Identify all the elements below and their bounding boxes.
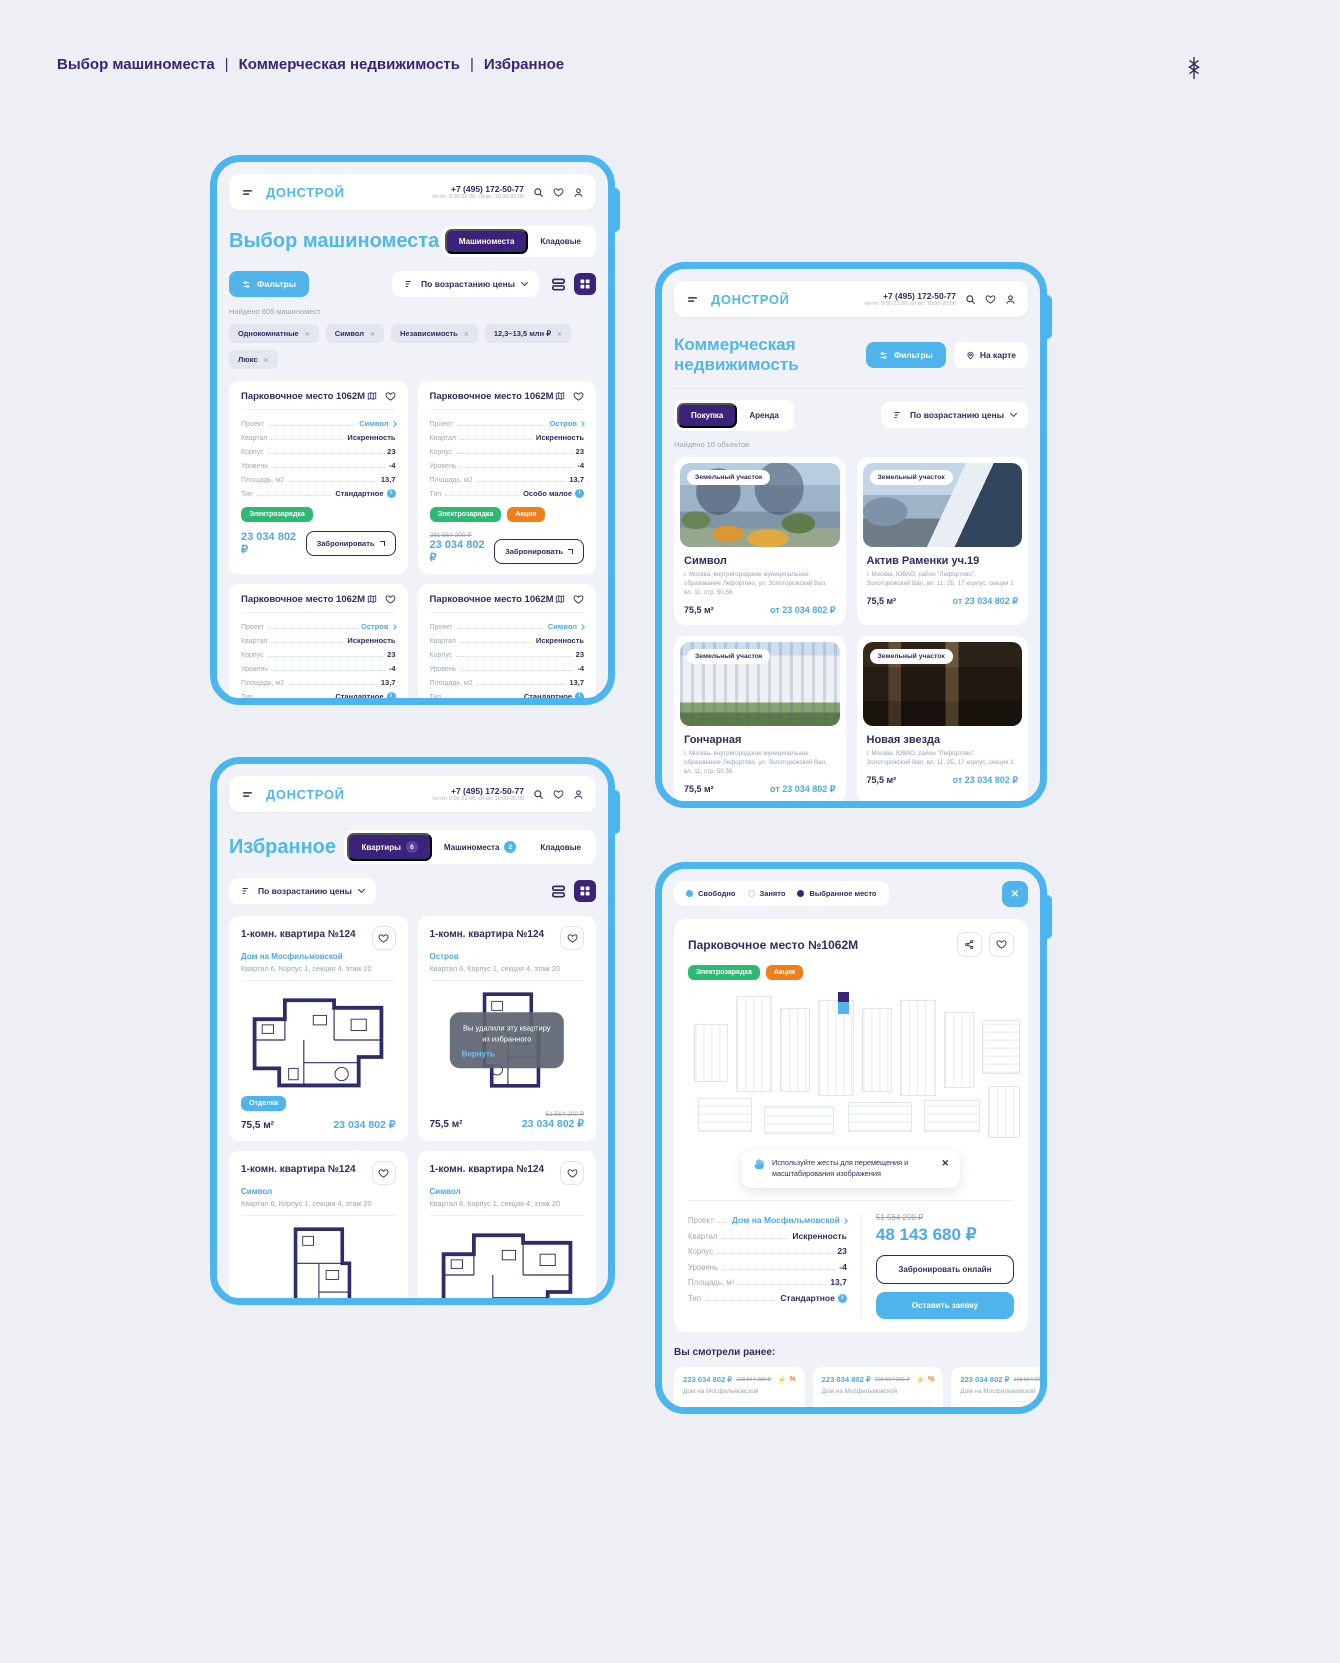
screen-parking-list: ДОНСТРОЙ +7 (495) 172-50-77 пн-пт: 9:00-… — [217, 162, 608, 698]
info-icon[interactable] — [575, 489, 584, 498]
app-bar: ДОНСТРОЙ +7 (495) 172-50-77 пн-пт: 9:00-… — [229, 776, 596, 812]
legend-occupied: Занято — [748, 889, 786, 898]
info-icon[interactable] — [838, 1294, 847, 1303]
chevron-down-icon — [358, 886, 365, 893]
property-area: 75,5 м² — [684, 605, 770, 615]
logo[interactable]: ДОНСТРОЙ — [711, 292, 790, 307]
parking-card-title: Парковочное место 1062М — [430, 594, 556, 605]
phone-number[interactable]: +7 (495) 172-50-77 — [864, 291, 956, 301]
parking-card: Парковочное место 1062М ПроектСимвол Ква… — [418, 584, 597, 698]
chevron-right-icon — [391, 421, 397, 427]
property-photo: Земельный участок — [680, 463, 840, 547]
parking-count-badge: 2 — [504, 841, 516, 853]
sort-icon — [893, 410, 903, 420]
apartment-location: Квартал 6, Корпус 1, секция 4, этаж 20 — [241, 1199, 396, 1208]
deal-tabs: Покупка Аренда — [674, 400, 794, 431]
apartments-count-badge: 6 — [406, 841, 418, 853]
map-view-button[interactable]: На карте — [954, 342, 1028, 368]
property-price: от 23 034 802 ₽ — [770, 784, 835, 795]
device-side-button — [1047, 295, 1052, 339]
grid-view-icon[interactable] — [574, 880, 596, 902]
promo-icon: % — [928, 1376, 934, 1383]
sort-icon — [404, 279, 414, 289]
selected-dot-icon — [797, 890, 804, 897]
apartment-card: 1-комн. квартира №124 Символ Квартал 6, … — [418, 1151, 597, 1298]
parking-card: Парковочное место 1062М ПроектОстров Ква… — [229, 584, 408, 698]
charging-icon: ⚡ — [778, 1376, 787, 1384]
view-toggle — [551, 880, 596, 902]
property-area: 75,5 м² — [867, 775, 953, 785]
info-icon[interactable] — [387, 489, 396, 498]
floor-plan-image — [241, 1219, 396, 1298]
section-divider — [674, 388, 1028, 389]
parking-card-title: Парковочное место 1062М — [430, 391, 556, 402]
page-title: Выбор машиноместа — [229, 230, 439, 253]
map-icon[interactable] — [367, 391, 377, 402]
property-photo: Земельный участок — [863, 463, 1023, 547]
property-price: от 23 034 802 ₽ — [770, 605, 835, 616]
apartment-area: 75,5 м² — [430, 1119, 522, 1130]
work-hours: пн-пт: 9:00-21:00, сб-вс: 10:00-20:00 — [432, 796, 524, 803]
app-bar: ДОНСТРОЙ +7 (495) 172-50-77 пн-пт: 9:00-… — [674, 281, 1028, 317]
breadcrumb-item: Выбор машиноместа — [57, 56, 215, 73]
tab-storage[interactable]: Кладовые — [528, 231, 593, 252]
project-link[interactable]: Символ — [548, 620, 584, 633]
apartment-title: 1-комн. квартира №124 — [430, 929, 561, 940]
parking-card: Парковочное место 1062М ПроектОстров Ква… — [418, 381, 597, 574]
history-project: Дом на Мосфильмовской — [683, 1388, 796, 1395]
map-icon[interactable] — [555, 594, 565, 605]
tab-storage[interactable]: Кладовые — [528, 837, 593, 858]
heart-icon[interactable] — [372, 1161, 396, 1185]
price: 23 034 802 ₽ — [241, 531, 306, 556]
apartment-area: 75,5 м² — [241, 1120, 333, 1131]
removed-toast-text: Вы удалили эту квартиру из избранного — [463, 1023, 551, 1043]
land-badge: Земельный участок — [870, 649, 953, 664]
screen-parking-detail: Свободно Занято Выбранное место Парковоч… — [662, 869, 1040, 1407]
history-price: 223 034 802 ₽ — [822, 1375, 871, 1384]
project-link[interactable]: Остров — [550, 417, 584, 430]
plan-legend: Свободно Занято Выбранное место — [674, 881, 889, 906]
price: 48 143 680 ₽ — [876, 1225, 1014, 1245]
floor-plan-image: Вы удалили эту квартиру из избранного Ве… — [430, 984, 585, 1096]
history-project: Дом на Мосфильмовской — [822, 1388, 935, 1395]
remove-chip-icon[interactable] — [464, 329, 469, 338]
device-side-button — [615, 188, 620, 232]
book-online-button[interactable]: Забронировать онлайн — [876, 1255, 1014, 1284]
menu-icon[interactable] — [686, 293, 699, 306]
parking-card-title: Парковочное место 1062М — [241, 594, 367, 605]
tab-apartments[interactable]: Квартиры6 — [347, 833, 431, 861]
land-badge: Земельный участок — [687, 649, 770, 664]
map-pin-icon — [966, 351, 975, 360]
remove-chip-icon[interactable] — [264, 355, 269, 364]
work-hours: пн-пт: 9:00-21:00, сб-вс: 10:00-20:00 — [864, 301, 956, 308]
page-title: Избранное — [229, 836, 336, 859]
project-link[interactable]: Остров — [430, 952, 585, 961]
project-link[interactable]: Символ — [241, 1187, 396, 1196]
apartment-card: 1-комн. квартира №124 Остров Квартал 6, … — [418, 916, 597, 1141]
property-address: г. Москва, ЮВАО, район "Лефортово", Золо… — [867, 571, 1019, 589]
gesture-tooltip: Используйте жесты для перемещения и масш… — [742, 1150, 960, 1188]
tab-buy[interactable]: Покупка — [677, 403, 737, 428]
history-old-price: 228 564 200 ₽ — [875, 1377, 913, 1383]
apartment-location: Квартал 6, Корпус 1, секция 4, этаж 20 — [241, 964, 396, 973]
apartment-title: 1-комн. квартира №124 — [430, 1164, 561, 1175]
price: 23 034 802 ₽ — [333, 1119, 395, 1131]
favorites-tabs: Квартиры6 Машиноместа2 Кладовые — [344, 830, 596, 864]
property-title: Символ — [684, 555, 836, 567]
filter-chip[interactable]: Символ — [326, 324, 384, 343]
breadcrumb-item: Избранное — [484, 56, 564, 73]
leave-request-button[interactable]: Оставить заявку — [876, 1292, 1014, 1319]
share-icon[interactable] — [957, 932, 982, 957]
filters-button[interactable]: Фильтры — [866, 342, 946, 368]
price: 23 034 802 ₽ — [430, 539, 495, 564]
breadcrumb-separator: | — [225, 56, 229, 73]
property-title: Гончарная — [684, 734, 836, 746]
filter-chips: Однокомнатные Символ Независимость 12,3–… — [229, 324, 596, 369]
contact-block: +7 (495) 172-50-77 пн-пт: 9:00-21:00, сб… — [432, 184, 524, 201]
chevron-right-icon — [391, 624, 397, 630]
apartment-location: Квартал 6, Корпус 1, секция 4, этаж 20 — [430, 964, 585, 973]
history-title: Вы смотрели ранее: — [674, 1347, 1028, 1358]
favorites-icon[interactable] — [553, 187, 564, 198]
chevron-right-icon — [579, 624, 585, 630]
app-bar: ДОНСТРОЙ +7 (495) 172-50-77 пн-пт: 9:00-… — [229, 174, 596, 210]
parking-detail-title: Парковочное место №1062М — [688, 938, 950, 952]
device-frame-parking-detail: Свободно Занято Выбранное место Парковоч… — [655, 862, 1047, 1414]
commercial-card[interactable]: Земельный участок Актив Раменки уч.19 г.… — [857, 457, 1029, 625]
search-icon[interactable] — [965, 294, 976, 305]
filter-icon — [879, 351, 888, 360]
sort-icon — [241, 886, 251, 896]
price: 23 034 802 ₽ — [522, 1118, 584, 1130]
apartment-card: 1-комн. квартира №124 Дом на Мосфильмовс… — [229, 916, 408, 1141]
heart-icon[interactable] — [560, 926, 584, 950]
apartment-title: 1-комн. квартира №124 — [241, 929, 372, 940]
book-button[interactable]: Забронировать — [306, 531, 396, 556]
history-old-price: 228 564 200 ₽ — [736, 1377, 774, 1383]
results-count: Найдено 10 объектов — [674, 440, 1028, 449]
close-icon[interactable] — [1002, 881, 1028, 907]
occupied-dot-icon — [748, 890, 755, 897]
chevron-down-icon — [521, 279, 528, 286]
contact-block: +7 (495) 172-50-77 пн-пт: 9:00-21:00, сб… — [864, 291, 956, 308]
history-price: 223 034 802 ₽ — [683, 1375, 732, 1384]
history-price: 223 034 802 ₽ — [960, 1375, 1009, 1384]
charging-icon: ⚡ — [916, 1376, 925, 1384]
screen-commercial: ДОНСТРОЙ +7 (495) 172-50-77 пн-пт: 9:00-… — [662, 269, 1040, 801]
chevron-down-icon — [1010, 410, 1017, 417]
old-price: 281 564 200 ₽ — [430, 531, 495, 539]
info-icon[interactable] — [575, 692, 584, 698]
phone-number[interactable]: +7 (495) 172-50-77 — [432, 184, 524, 194]
device-frame-favorites: ДОНСТРОЙ +7 (495) 172-50-77 пн-пт: 9:00-… — [210, 757, 615, 1305]
heart-icon[interactable] — [385, 594, 396, 605]
legend-selected: Выбранное место — [797, 889, 876, 898]
parking-card-title: Парковочное место 1062М — [241, 391, 367, 402]
land-badge: Земельный участок — [687, 470, 770, 485]
land-badge: Земельный участок — [870, 470, 953, 485]
filter-icon — [242, 280, 251, 289]
hand-gesture-icon — [753, 1158, 765, 1170]
badge-promo: Акция — [766, 965, 803, 980]
history-project: Дом на Мосфильмовской — [960, 1388, 1040, 1395]
heart-icon[interactable] — [560, 1161, 584, 1185]
device-side-button — [615, 790, 620, 834]
commercial-card[interactable]: Земельный участок Новая звезда г. Москва… — [857, 636, 1029, 801]
old-price: 51 564 200 ₽ — [876, 1213, 1014, 1222]
apartment-title: 1-комн. квартира №124 — [241, 1164, 372, 1175]
property-photo: Земельный участок — [863, 642, 1023, 726]
corner-arrow-icon — [380, 541, 385, 546]
chevron-right-icon — [579, 421, 585, 427]
removed-toast: Вы удалили эту квартиру из избранного Ве… — [450, 1012, 564, 1068]
old-price: 51 564 200 ₽ — [522, 1110, 584, 1118]
heart-icon[interactable] — [385, 391, 396, 402]
breadcrumb-item: Коммерческая недвижимость — [239, 56, 460, 73]
parking-properties: ПроектДом на Мосфильмовской КварталИскре… — [688, 1213, 861, 1319]
floor-plan-image — [430, 1219, 585, 1298]
parking-plan-image[interactable]: Используйте жесты для перемещения и масш… — [688, 990, 1014, 1188]
property-address: г. Москва, внутригородское муниципальное… — [684, 750, 836, 777]
project-link[interactable]: Остров — [361, 620, 395, 633]
account-icon[interactable] — [1005, 294, 1016, 305]
restore-link[interactable]: Вернуть — [462, 1049, 495, 1058]
remove-chip-icon[interactable] — [557, 329, 562, 338]
device-side-button — [1047, 895, 1052, 939]
apartment-location: Квартал 6, Корпус 1, секция 4, этаж 20 — [430, 1199, 585, 1208]
badge-finishing: Отделка — [241, 1096, 286, 1111]
badge-charging: Электрозарядка — [688, 965, 760, 980]
history-old-price: 228 564 200 ₽ — [1013, 1377, 1040, 1383]
logo[interactable]: ДОНСТРОЙ — [266, 787, 345, 802]
project-link[interactable]: Символ — [359, 417, 395, 430]
filter-chip[interactable]: Независимость — [391, 324, 478, 343]
gesture-tooltip-text: Используйте жесты для перемещения и масш… — [772, 1158, 934, 1180]
breadcrumb: Выбор машиноместа | Коммерческая недвижи… — [57, 56, 564, 73]
account-icon[interactable] — [573, 789, 584, 800]
filter-chip[interactable]: Люкс — [229, 350, 278, 369]
project-link[interactable]: Дом на Мосфильмовской — [241, 952, 396, 961]
badge-charging: Электрозарядка — [241, 507, 313, 522]
apartment-card: 1-комн. квартира №124 Символ Квартал 6, … — [229, 1151, 408, 1298]
page-title: Коммерческая недвижимость — [674, 335, 824, 376]
history-card[interactable]: 223 034 802 ₽ 228 564 200 ₽ ⚡% Дом на Мо… — [951, 1367, 1040, 1407]
filters-button[interactable]: Фильтры — [229, 271, 309, 297]
tab-parking[interactable]: Машиноместа — [445, 229, 529, 254]
property-price: от 23 034 802 ₽ — [953, 775, 1018, 786]
sort-select[interactable]: По возрастанию цены — [881, 402, 1028, 428]
device-frame-commercial: ДОНСТРОЙ +7 (495) 172-50-77 пн-пт: 9:00-… — [655, 262, 1047, 808]
grid-view-icon[interactable] — [574, 273, 596, 295]
history-card[interactable]: 223 034 802 ₽ 228 564 200 ₽ ⚡% Дом на Мо… — [674, 1367, 805, 1407]
filter-chip[interactable]: Однокомнатные — [229, 324, 319, 343]
commercial-card[interactable]: Земельный участок Гончарная г. Москва, в… — [674, 636, 846, 801]
chevron-right-icon — [842, 1218, 848, 1224]
sort-select[interactable]: По возрастанию цены — [392, 271, 539, 297]
view-toggle — [551, 273, 596, 295]
tab-parking[interactable]: Машиноместа2 — [432, 835, 529, 859]
remove-chip-icon[interactable] — [305, 329, 310, 338]
property-area: 75,5 м² — [684, 784, 770, 794]
history-card[interactable]: 223 034 802 ₽ 228 564 200 ₽ ⚡% Дом на Мо… — [813, 1367, 944, 1407]
tooltip-close-icon[interactable] — [941, 1158, 949, 1169]
heart-icon[interactable] — [573, 594, 584, 605]
property-address: г. Москва, внутригородское муниципальное… — [684, 571, 836, 598]
map-icon[interactable] — [555, 391, 565, 402]
property-price: от 23 034 802 ₽ — [953, 596, 1018, 607]
work-hours: пн-пт: 9:00-21:00, сб-вс: 10:00-20:00 — [432, 194, 524, 201]
commercial-card[interactable]: Земельный участок Символ г. Москва, внут… — [674, 457, 846, 625]
heart-icon[interactable] — [989, 932, 1014, 957]
menu-icon[interactable] — [241, 186, 254, 199]
selected-parking-spot[interactable] — [838, 992, 849, 1014]
map-icon[interactable] — [367, 594, 377, 605]
filter-chip[interactable]: 12,3–13,5 млн ₽ — [485, 324, 571, 343]
breadcrumb-separator: | — [470, 56, 474, 73]
heart-icon[interactable] — [372, 926, 396, 950]
book-button[interactable]: Забронировать — [494, 539, 584, 564]
property-photo: Земельный участок — [680, 642, 840, 726]
list-view-icon[interactable] — [551, 277, 566, 292]
list-view-icon[interactable] — [551, 884, 566, 899]
property-area: 75,5 м² — [867, 596, 953, 606]
logo[interactable]: ДОНСТРОЙ — [266, 185, 345, 200]
free-dot-icon — [686, 890, 693, 897]
info-icon[interactable] — [387, 692, 396, 698]
decor-knot-icon — [1183, 55, 1205, 81]
contact-block: +7 (495) 172-50-77 пн-пт: 9:00-21:00, сб… — [432, 786, 524, 803]
phone-number[interactable]: +7 (495) 172-50-77 — [432, 786, 524, 796]
badge-promo: Акция — [507, 507, 544, 522]
corner-arrow-icon — [568, 549, 573, 554]
account-icon[interactable] — [573, 187, 584, 198]
sort-select[interactable]: По возрастанию цены — [229, 878, 376, 904]
promo-icon: % — [789, 1376, 795, 1383]
project-link[interactable]: Дом на Мосфильмовской — [732, 1213, 847, 1229]
search-icon[interactable] — [533, 789, 544, 800]
legend-free: Свободно — [686, 889, 736, 898]
results-count: Найдено 805 машиномест — [229, 307, 596, 316]
screen-favorites: ДОНСТРОЙ +7 (495) 172-50-77 пн-пт: 9:00-… — [217, 764, 608, 1298]
heart-icon[interactable] — [573, 391, 584, 402]
parking-card: Парковочное место 1062М ПроектСимвол Ква… — [229, 381, 408, 574]
remove-chip-icon[interactable] — [370, 329, 375, 338]
search-icon[interactable] — [533, 187, 544, 198]
project-link[interactable]: Символ — [430, 1187, 585, 1196]
category-tabs: Машиноместа Кладовые — [442, 226, 596, 257]
menu-icon[interactable] — [241, 788, 254, 801]
favorites-icon[interactable] — [985, 294, 996, 305]
history-list: 223 034 802 ₽ 228 564 200 ₽ ⚡% Дом на Мо… — [674, 1367, 1028, 1407]
parking-detail-card: Парковочное место №1062М Электрозарядка … — [674, 919, 1028, 1332]
floor-plan-image — [241, 984, 396, 1096]
property-title: Актив Раменки уч.19 — [867, 555, 1019, 567]
favorites-icon[interactable] — [553, 789, 564, 800]
property-address: г. Москва, ЮВАО, район "Лефортово", Золо… — [867, 750, 1019, 768]
badge-charging: Электрозарядка — [430, 507, 502, 522]
property-title: Новая звезда — [867, 734, 1019, 746]
device-frame-parking-list: ДОНСТРОЙ +7 (495) 172-50-77 пн-пт: 9:00-… — [210, 155, 615, 705]
tab-rent[interactable]: Аренда — [737, 405, 790, 426]
